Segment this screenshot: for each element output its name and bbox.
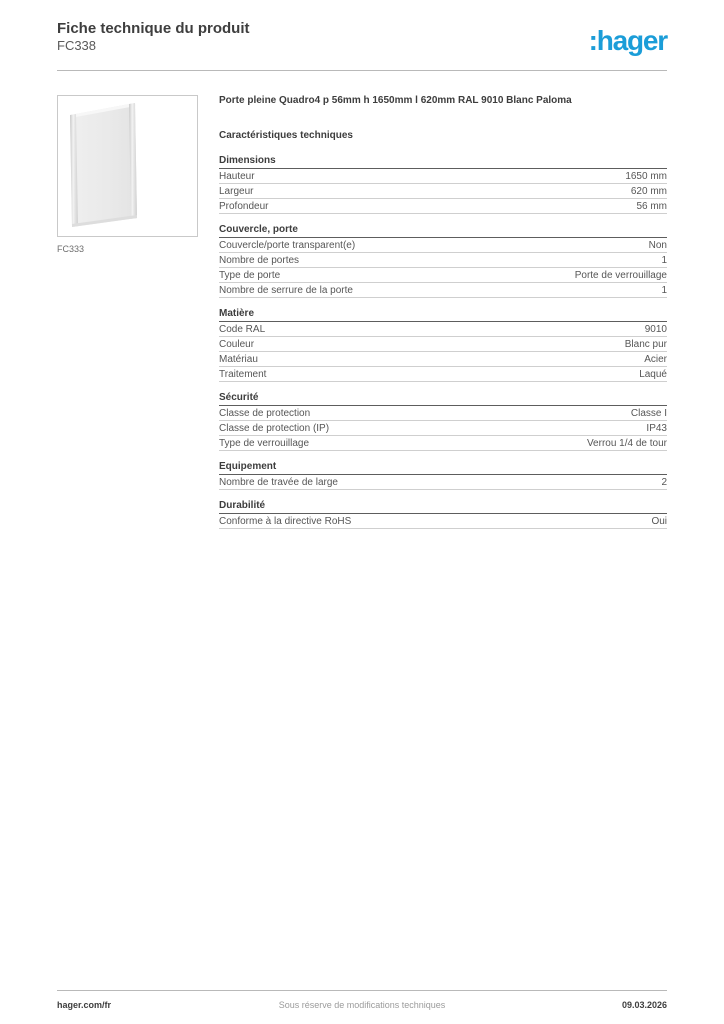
spec-row-label: Profondeur	[219, 201, 268, 212]
characteristics-heading: Caractéristiques techniques	[219, 130, 667, 141]
spec-section-title: Durabilité	[219, 499, 667, 514]
spec-row-value: Laqué	[639, 369, 667, 380]
spec-row-value: 620 mm	[631, 186, 667, 197]
spec-row-value: 56 mm	[636, 201, 667, 212]
page-header: Fiche technique du produit FC338 :hager	[57, 20, 667, 56]
spec-section: EquipementNombre de travée de large2	[219, 460, 667, 490]
spec-row: Type de portePorte de verrouillage	[219, 268, 667, 283]
spec-row-label: Nombre de travée de large	[219, 477, 338, 488]
spec-row-value: Acier	[644, 354, 667, 365]
spec-section: SécuritéClasse de protectionClasse IClas…	[219, 391, 667, 451]
spec-row-label: Nombre de serrure de la porte	[219, 285, 353, 296]
spec-row-value: 9010	[645, 324, 667, 335]
spec-row-value: Blanc pur	[625, 339, 667, 350]
header-divider	[57, 70, 667, 71]
spec-row-value: 1	[661, 255, 667, 266]
spec-section-title: Sécurité	[219, 391, 667, 406]
spec-section-title: Matière	[219, 307, 667, 322]
product-title: Porte pleine Quadro4 p 56mm h 1650mm l 6…	[219, 95, 667, 107]
image-caption: FC333	[57, 244, 198, 254]
spec-section-title: Couvercle, porte	[219, 223, 667, 238]
spec-column: Porte pleine Quadro4 p 56mm h 1650mm l 6…	[219, 95, 667, 529]
spec-row: Profondeur56 mm	[219, 199, 667, 214]
spec-row-value: Verrou 1/4 de tour	[587, 438, 667, 449]
spec-row-label: Type de porte	[219, 270, 280, 281]
spec-row: TraitementLaqué	[219, 367, 667, 382]
product-image	[57, 95, 198, 237]
spec-row-value: Porte de verrouillage	[575, 270, 667, 281]
spec-row-label: Largeur	[219, 186, 253, 197]
spec-row: CouleurBlanc pur	[219, 337, 667, 352]
footer-disclaimer: Sous réserve de modifications techniques	[57, 1000, 667, 1010]
spec-row: Couvercle/porte transparent(e)Non	[219, 238, 667, 253]
spec-row-value: 2	[661, 477, 667, 488]
page-footer: hager.com/fr Sous réserve de modificatio…	[57, 990, 667, 1010]
spec-row-value: Oui	[651, 516, 667, 527]
product-image-column: FC333	[57, 95, 198, 529]
spec-section: DurabilitéConforme à la directive RoHSOu…	[219, 499, 667, 529]
spec-row: Largeur620 mm	[219, 184, 667, 199]
spec-row: Classe de protectionClasse I	[219, 406, 667, 421]
spec-row-label: Type de verrouillage	[219, 438, 309, 449]
spec-row-value: Non	[649, 240, 667, 251]
spec-row: Nombre de travée de large2	[219, 475, 667, 490]
spec-row-label: Conforme à la directive RoHS	[219, 516, 351, 527]
spec-row-value: Classe I	[631, 408, 667, 419]
door-illustration	[58, 96, 197, 236]
spec-row: Nombre de serrure de la porte1	[219, 283, 667, 298]
spec-sections: DimensionsHauteur1650 mmLargeur620 mmPro…	[219, 154, 667, 529]
spec-section: MatièreCode RAL9010CouleurBlanc purMatér…	[219, 307, 667, 382]
spec-row-value: 1	[661, 285, 667, 296]
page-title: Fiche technique du produit	[57, 20, 250, 38]
datasheet-page: Fiche technique du produit FC338 :hager	[0, 0, 724, 1024]
spec-row-label: Nombre de portes	[219, 255, 299, 266]
spec-row: Code RAL9010	[219, 322, 667, 337]
spec-row: Type de verrouillageVerrou 1/4 de tour	[219, 436, 667, 451]
spec-section-title: Equipement	[219, 460, 667, 475]
product-reference: FC338	[57, 38, 250, 54]
header-title-block: Fiche technique du produit FC338	[57, 20, 250, 54]
spec-section-title: Dimensions	[219, 154, 667, 169]
spec-row-label: Matériau	[219, 354, 258, 365]
spec-row-label: Code RAL	[219, 324, 265, 335]
spec-row: Nombre de portes1	[219, 253, 667, 268]
spec-row-label: Traitement	[219, 369, 266, 380]
main-content: FC333 Porte pleine Quadro4 p 56mm h 1650…	[57, 95, 667, 529]
spec-section: Couvercle, porteCouvercle/porte transpar…	[219, 223, 667, 298]
spec-row-label: Couleur	[219, 339, 254, 350]
hager-logo: :hager	[589, 26, 667, 56]
spec-row-label: Couvercle/porte transparent(e)	[219, 240, 355, 251]
spec-row-label: Classe de protection	[219, 408, 310, 419]
spec-row: Hauteur1650 mm	[219, 169, 667, 184]
spec-row: Conforme à la directive RoHSOui	[219, 514, 667, 529]
spec-row: Classe de protection (IP)IP43	[219, 421, 667, 436]
spec-row-label: Classe de protection (IP)	[219, 423, 329, 434]
spec-row-value: IP43	[646, 423, 667, 434]
spec-row-value: 1650 mm	[625, 171, 667, 182]
spec-row: MatériauAcier	[219, 352, 667, 367]
spec-row-label: Hauteur	[219, 171, 255, 182]
spec-section: DimensionsHauteur1650 mmLargeur620 mmPro…	[219, 154, 667, 214]
